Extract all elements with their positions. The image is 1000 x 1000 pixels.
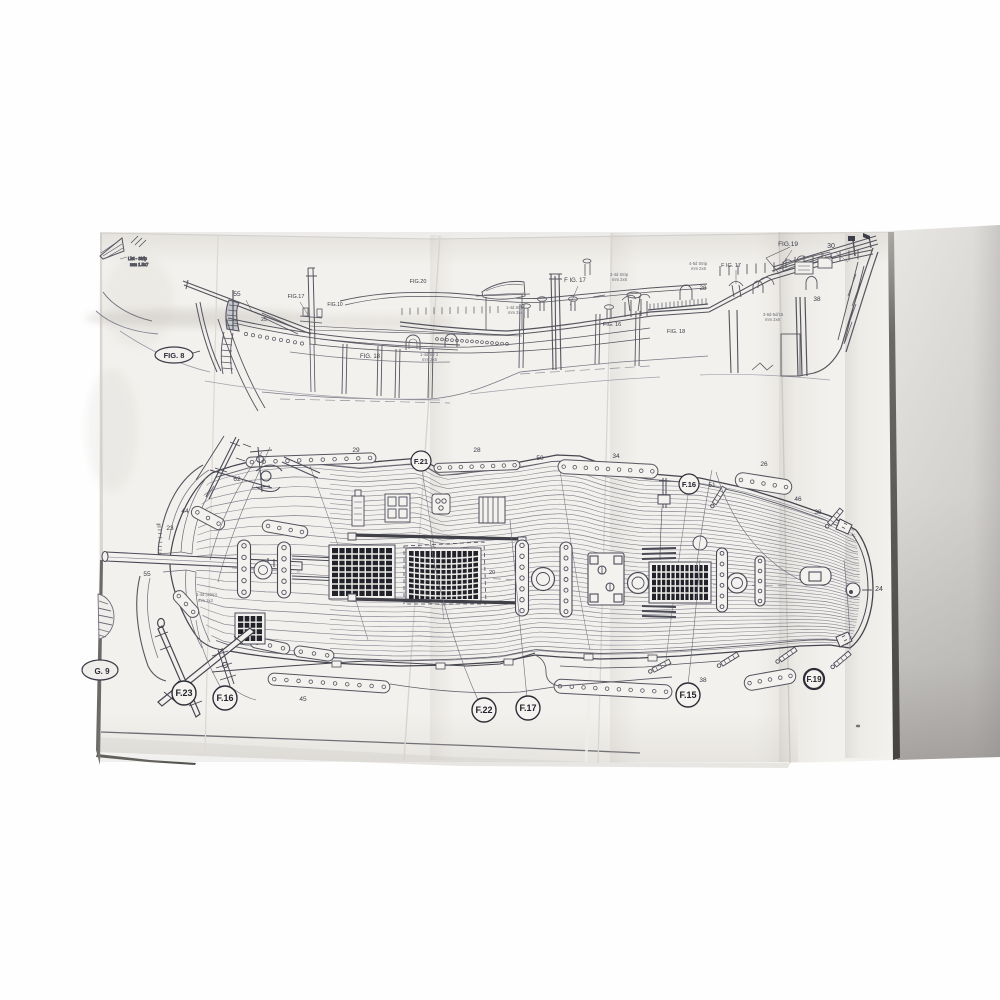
svg-text:51: 51 [708,482,716,489]
svg-text:mm 2x5: mm 2x5 [422,357,438,362]
svg-text:FIG.20: FIG.20 [410,279,427,285]
svg-text:F IG. 17: F IG. 17 [721,263,741,269]
svg-text:38: 38 [699,677,707,684]
svg-text:45: 45 [299,696,307,703]
svg-text:G. 9: G. 9 [94,667,110,676]
svg-text:38: 38 [813,296,821,303]
svg-text:FIG.19: FIG.19 [778,241,798,248]
svg-text:FIG. 18: FIG. 18 [667,329,685,335]
svg-text:FIG.10: FIG.10 [327,302,343,308]
svg-text:26: 26 [760,461,768,468]
svg-text:50: 50 [536,455,544,462]
svg-text:55: 55 [233,291,241,298]
svg-text:F.16: F.16 [682,480,696,489]
svg-text:List - Strip: List - Strip [128,256,148,261]
svg-text:55: 55 [143,571,151,578]
svg-text:29: 29 [352,447,360,454]
svg-text:mm 1x2: mm 1x2 [198,598,214,603]
svg-text:24: 24 [875,586,883,593]
svg-text:mm 1.5x7: mm 1.5x7 [130,262,149,267]
svg-text:FIG. 16: FIG. 16 [603,322,621,328]
svg-text:28: 28 [473,447,481,454]
svg-text:mm 2x6: mm 2x6 [691,266,707,271]
svg-text:FIG. 8: FIG. 8 [164,351,185,360]
svg-text:34: 34 [612,453,620,460]
svg-text:62: 62 [233,476,241,483]
svg-text:F.19: F.19 [806,675,822,684]
svg-text:F.15: F.15 [679,690,696,700]
svg-text:F.17: F.17 [519,703,536,713]
svg-text:FIG. 18: FIG. 18 [360,354,381,360]
svg-text:20: 20 [489,570,495,576]
svg-text:F IG. 17: F IG. 17 [564,278,586,284]
svg-text:mm 2x6: mm 2x6 [612,277,628,282]
svg-text:FIG.17: FIG.17 [288,294,305,300]
svg-text:F.22: F.22 [475,705,492,715]
svg-text:46: 46 [794,496,802,503]
svg-text:28: 28 [700,286,707,292]
svg-text:30: 30 [827,243,835,250]
svg-text:25: 25 [261,317,267,323]
svg-text:44: 44 [181,508,189,515]
svg-text:F.16: F.16 [216,693,233,703]
svg-text:F.23: F.23 [175,688,192,698]
svg-text:38: 38 [814,509,822,516]
svg-text:mm 3x4: mm 3x4 [508,310,524,315]
svg-text:mm 2x6: mm 2x6 [765,317,781,322]
svg-text:23: 23 [166,525,174,532]
svg-text:F.21: F.21 [414,457,428,466]
svg-text:1-4d (Strip): 1-4d (Strip) [196,592,218,597]
